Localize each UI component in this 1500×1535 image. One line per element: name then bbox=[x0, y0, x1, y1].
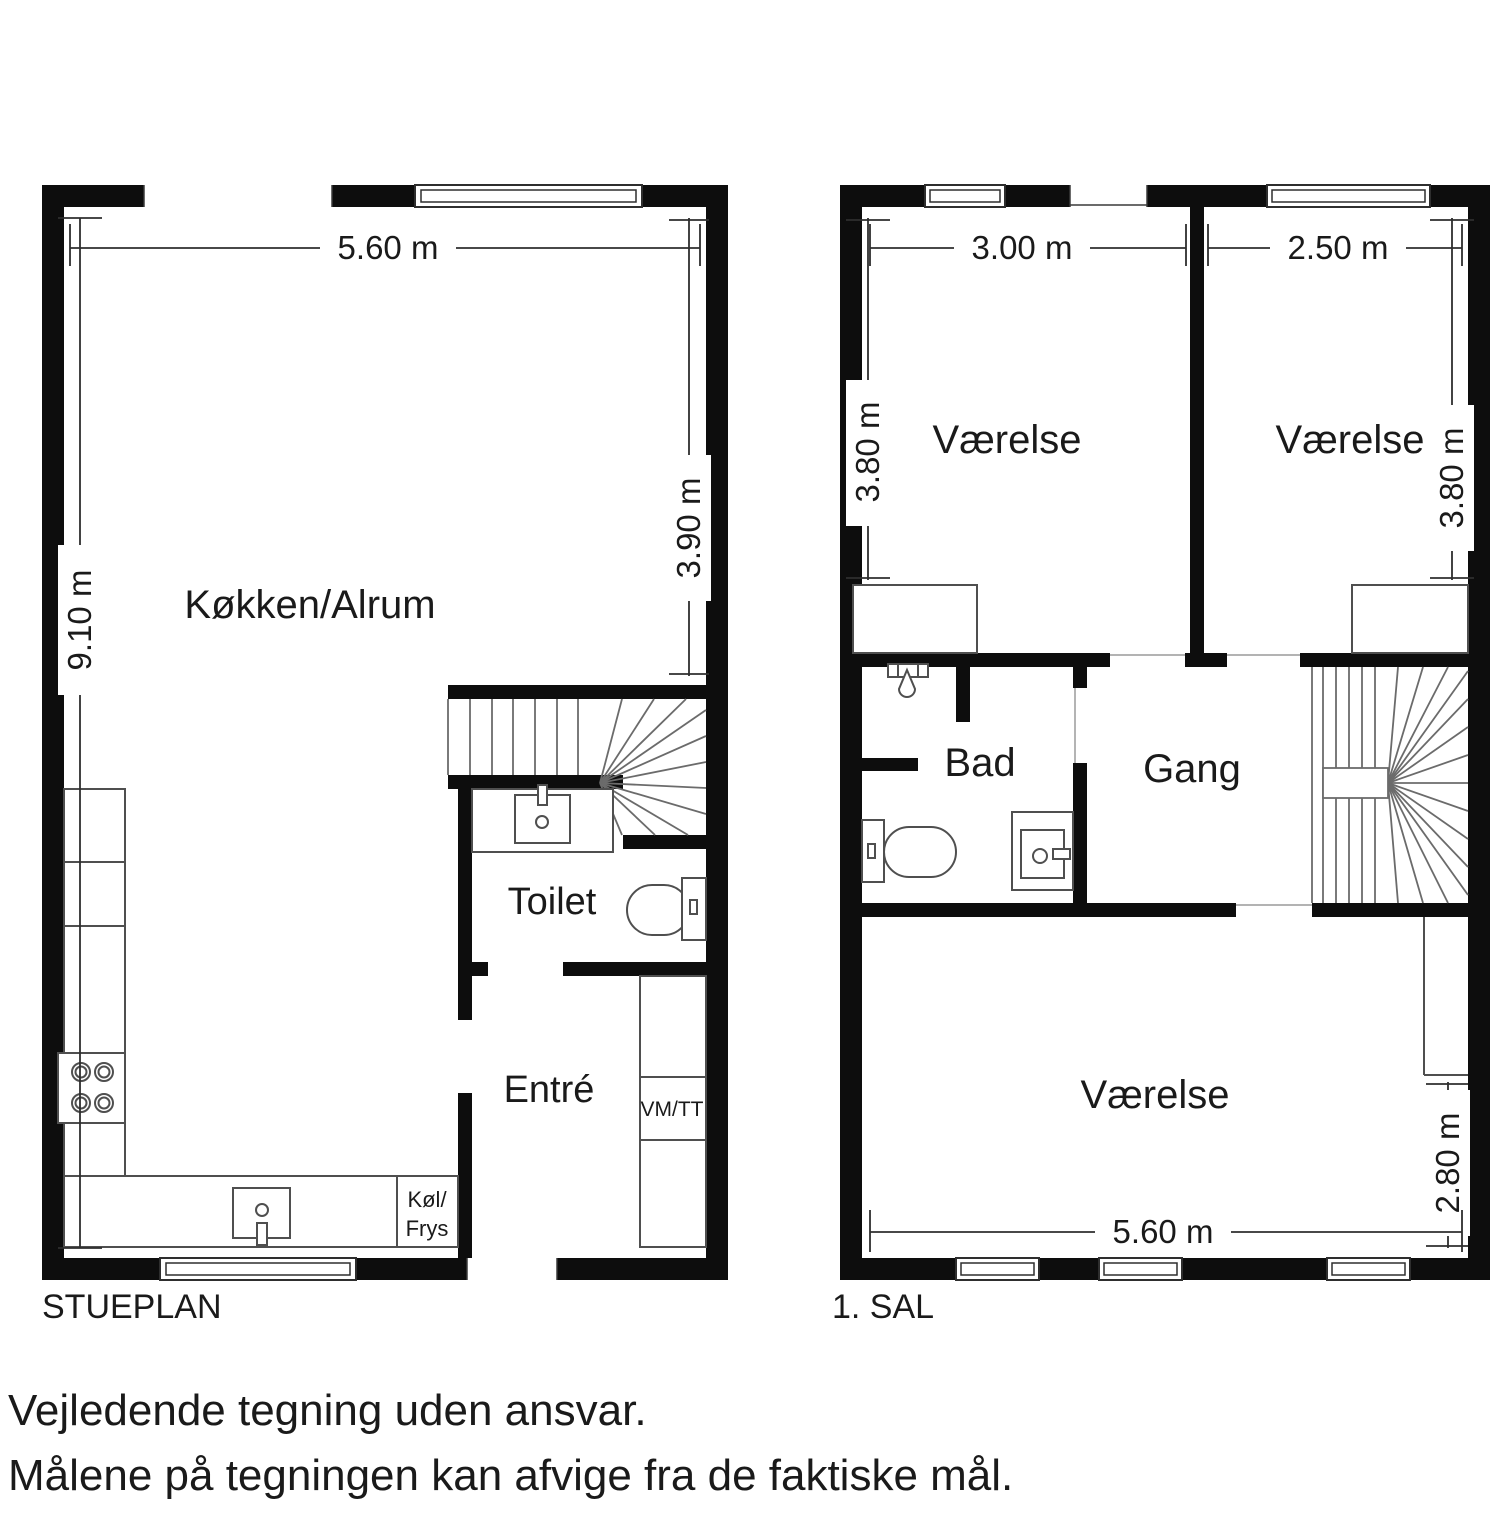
wall-toilet-stub bbox=[862, 758, 918, 771]
washer-dryer-label: VM/TT bbox=[641, 1098, 704, 1121]
wall-under-stairs bbox=[448, 775, 623, 789]
window bbox=[956, 1258, 1039, 1280]
floor-label-first-floor: 1. SAL bbox=[832, 1288, 934, 1326]
room-label-entry: Entré bbox=[504, 1069, 595, 1111]
wall-bath-hall bbox=[1073, 763, 1087, 903]
sink-tap bbox=[538, 785, 547, 805]
wall-right bbox=[1468, 185, 1490, 1280]
toilet-bowl bbox=[627, 885, 689, 935]
closet bbox=[1352, 585, 1468, 653]
bathroom-sink-icon bbox=[1012, 812, 1073, 890]
wall-bedroom-partition bbox=[1190, 207, 1204, 653]
window bbox=[415, 185, 642, 207]
floor-plan-drawing: VM/TT Køl/ Frys Kø bbox=[0, 0, 1500, 1535]
window bbox=[1327, 1258, 1410, 1280]
fridge-label-line1: Køl/ bbox=[407, 1187, 447, 1212]
room-label-hallway: Gang bbox=[1143, 747, 1241, 791]
window-frame bbox=[1099, 1258, 1182, 1280]
wall-toilet-left bbox=[458, 789, 472, 1020]
toilet-bowl bbox=[884, 827, 956, 877]
dimension-label: 3.00 m bbox=[972, 229, 1073, 266]
toilet-button bbox=[868, 844, 875, 858]
wall-entry-left bbox=[458, 1093, 472, 1258]
dimension-label: 2.80 m bbox=[1429, 1113, 1466, 1214]
wall-shower-stub bbox=[956, 653, 970, 722]
room-label-bedroom-bottom: Værelse bbox=[1081, 1073, 1230, 1117]
wall-band-top bbox=[1300, 653, 1468, 667]
window bbox=[1099, 1258, 1182, 1280]
wall-left bbox=[840, 185, 862, 1280]
sink-drain bbox=[256, 1204, 268, 1216]
dimension-bottom-height: 2.80 m bbox=[1426, 1082, 1470, 1248]
closet bbox=[853, 585, 977, 653]
entrance-door-opening bbox=[467, 1258, 557, 1280]
window-frame bbox=[1327, 1258, 1410, 1280]
vanity-sink bbox=[472, 785, 613, 852]
disclaimer-line-1: Vejledende tegning uden ansvar. bbox=[8, 1386, 647, 1435]
dimension-label: 3.80 m bbox=[1433, 428, 1470, 529]
wall-band-top bbox=[1185, 653, 1227, 667]
dimension-label: 3.90 m bbox=[670, 478, 707, 579]
wall-toilet-bottom bbox=[458, 962, 488, 976]
dimension-label: 2.50 m bbox=[1288, 229, 1389, 266]
wall-stairs-bottom bbox=[623, 835, 706, 849]
window-frame bbox=[925, 185, 1005, 207]
sink-tap bbox=[1053, 849, 1070, 859]
window-frame bbox=[1267, 185, 1430, 207]
room-label-bedroom-left: Værelse bbox=[933, 418, 1082, 462]
wall-band-bottom bbox=[862, 903, 1236, 917]
window bbox=[925, 185, 1005, 207]
room-label-kitchen: Køkken/Alrum bbox=[184, 583, 435, 627]
stove-icon bbox=[58, 1053, 125, 1123]
wall-right bbox=[706, 185, 728, 1280]
fridge-label-line2: Frys bbox=[406, 1216, 449, 1241]
wall-toilet-bottom bbox=[563, 962, 706, 976]
closet-washer-column: VM/TT bbox=[640, 976, 706, 1247]
window-frame bbox=[956, 1258, 1039, 1280]
door-opening bbox=[144, 185, 332, 207]
counter-bottom bbox=[64, 1176, 397, 1247]
wall-stairs-top bbox=[448, 685, 706, 699]
window-frame bbox=[160, 1258, 356, 1280]
floor-label-stueplan: STUEPLAN bbox=[42, 1288, 222, 1326]
window bbox=[1267, 185, 1430, 207]
room-label-toilet: Toilet bbox=[508, 881, 597, 923]
sink-drain bbox=[1033, 849, 1047, 863]
dimension-label: 9.10 m bbox=[61, 570, 98, 671]
sink-drain bbox=[536, 816, 548, 828]
dimension-label: 5.60 m bbox=[338, 229, 439, 266]
stair-landing bbox=[1323, 768, 1388, 798]
room-label-bathroom: Bad bbox=[944, 741, 1015, 785]
wall-bottom bbox=[42, 1258, 728, 1280]
toilet-button bbox=[690, 900, 697, 914]
wall-bath-hall bbox=[1073, 653, 1087, 688]
window-frame bbox=[415, 185, 642, 207]
room-label-bedroom-right: Værelse bbox=[1276, 418, 1425, 462]
sink-tap bbox=[257, 1223, 267, 1245]
window bbox=[160, 1258, 356, 1280]
wall-opening bbox=[1070, 185, 1147, 207]
dimension-label: 3.80 m bbox=[849, 402, 886, 503]
disclaimer-line-2: Målene på tegningen kan afvige fra de fa… bbox=[8, 1451, 1013, 1500]
toilet-icon bbox=[862, 820, 956, 882]
fridge-freezer: Køl/ Frys bbox=[397, 1176, 458, 1247]
wall-band-bottom bbox=[1312, 903, 1468, 917]
dimension-label: 5.60 m bbox=[1113, 1213, 1214, 1250]
